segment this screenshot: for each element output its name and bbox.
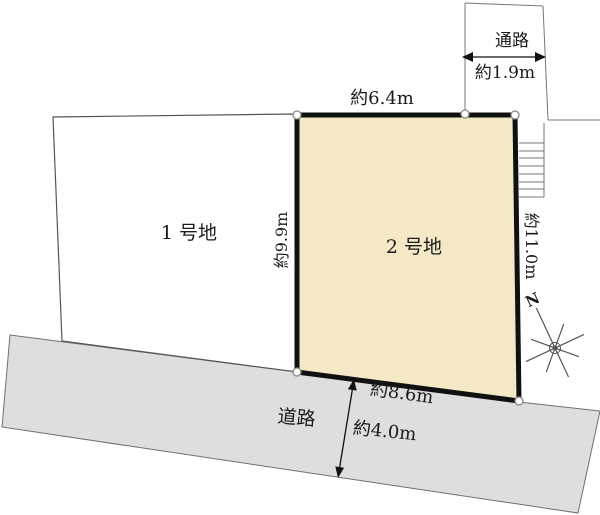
lot-plan-canvas: N 通路 約1.9m 約6.4m 1 号地 2 号地 約9.9m 約11.0m …	[0, 0, 600, 515]
arrowhead-left	[462, 52, 473, 62]
vertex-marker	[293, 368, 301, 376]
vertex-marker	[511, 111, 519, 119]
lot-2-label: 2 号地	[386, 236, 442, 258]
vertex-marker	[515, 397, 523, 405]
lot2-left-dimension: 約9.9m	[272, 212, 291, 269]
passage-right-line	[543, 6, 548, 120]
arrowhead-right	[535, 52, 546, 62]
passage-boundary-lines	[465, 3, 600, 120]
stairs	[519, 123, 544, 197]
lot-2-area	[297, 115, 519, 401]
lot-1-label: 1 号地	[161, 222, 217, 244]
passage-width-label: 約1.9m	[475, 63, 535, 83]
passage-width-arrow	[462, 52, 546, 62]
vertex-marker	[293, 111, 301, 119]
compass-north-label: N	[523, 289, 543, 311]
lot2-right-dimension: 約11.0m	[522, 213, 541, 280]
vertex-marker	[461, 110, 469, 118]
lot-plan-diagram: N 通路 約1.9m 約6.4m 1 号地 2 号地 約9.9m 約11.0m …	[0, 0, 600, 515]
passage-label: 通路	[495, 31, 529, 51]
passage-top-line	[465, 3, 543, 6]
lot2-top-dimension: 約6.4m	[350, 88, 414, 109]
road-label: 道路	[277, 405, 317, 430]
